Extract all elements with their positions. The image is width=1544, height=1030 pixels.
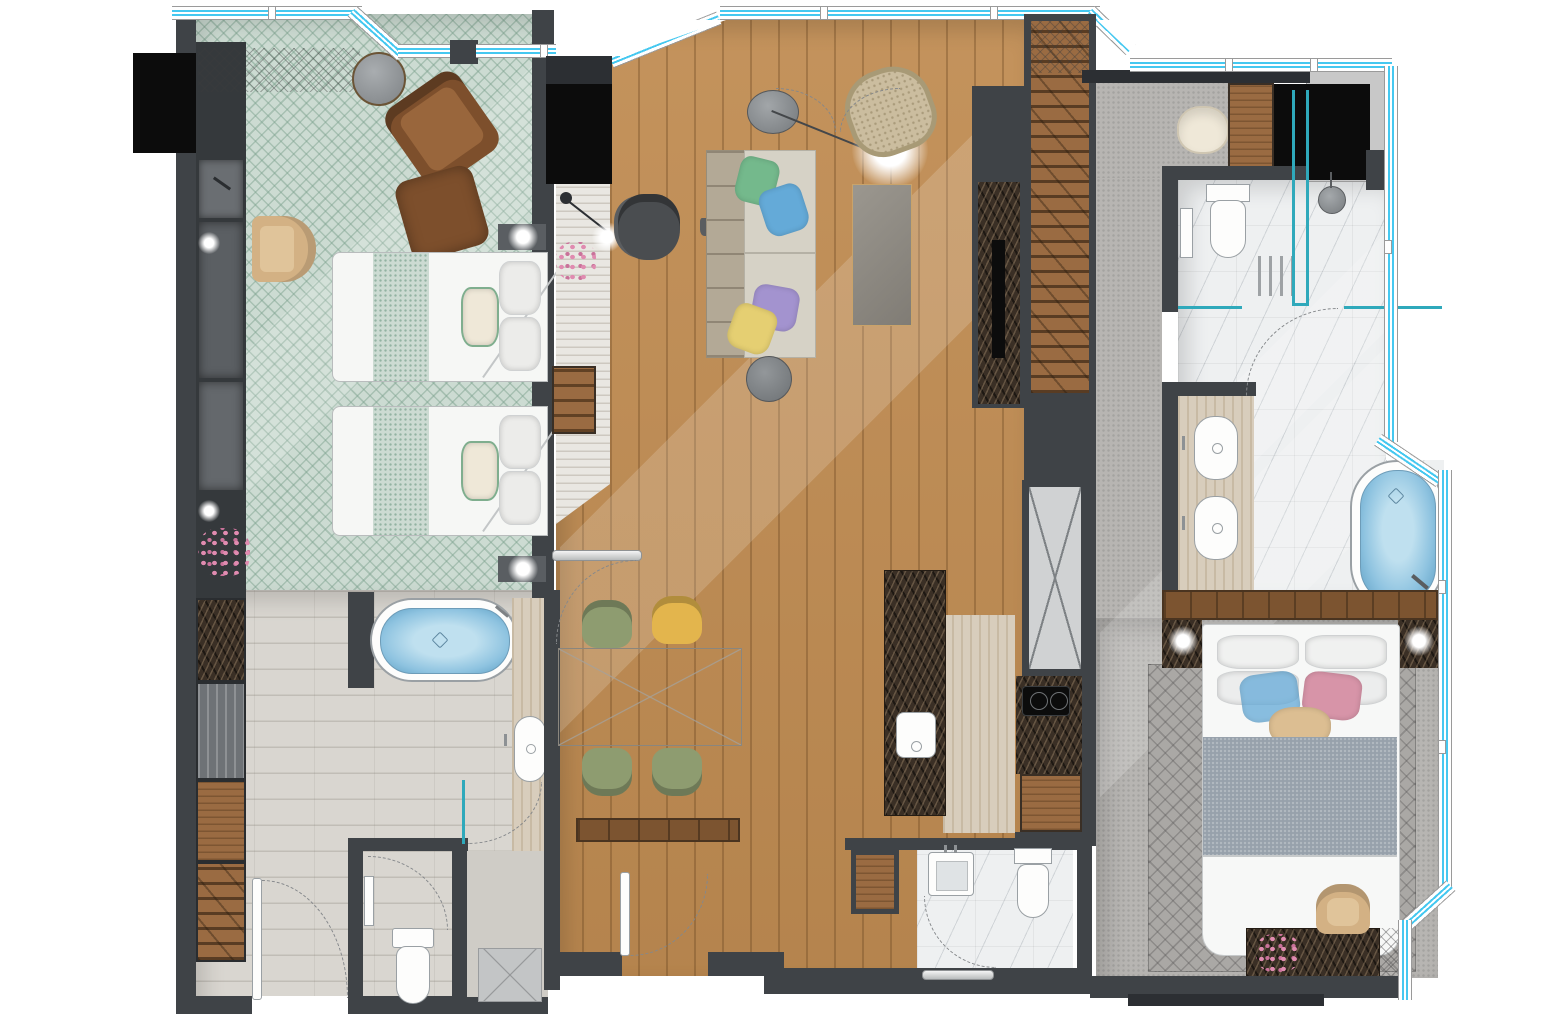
bed-pillow: [1217, 635, 1299, 669]
wall: [544, 952, 622, 976]
closet-panel: [199, 382, 243, 490]
dining-table: [558, 648, 742, 746]
master-toilet-bowl: [1210, 200, 1246, 258]
service-shaft: [1022, 480, 1088, 676]
window: [172, 6, 362, 20]
bed-pillow: [499, 261, 541, 315]
bed-pillow: [499, 317, 541, 371]
powder-sink: [928, 852, 974, 896]
vanity-sink-1: [1194, 416, 1238, 480]
powder-toilet-bowl: [1017, 864, 1049, 918]
shower-glass: [1292, 90, 1295, 306]
console-shelf: [552, 366, 596, 434]
wood-niche: [851, 850, 899, 914]
corridor-floor: [1096, 178, 1162, 620]
shower-tray: [478, 948, 542, 1002]
kitchen-floor: [943, 615, 1015, 833]
headboard-wood-band: [1162, 590, 1438, 620]
towel-niche: [1180, 208, 1193, 258]
vanity-sink: [514, 716, 546, 782]
shower-arm: [1330, 172, 1332, 188]
sink-drain: [911, 741, 922, 752]
toilet-bowl: [396, 946, 430, 1004]
coffee-counter: [1016, 676, 1082, 774]
wall: [450, 40, 478, 64]
bed-pillow: [1305, 635, 1387, 669]
window: [1384, 66, 1398, 442]
bed-runner: [373, 253, 429, 381]
powder-door-track: [922, 970, 994, 980]
sofa-seam: [745, 252, 815, 254]
vanity-faucet: [1182, 436, 1192, 450]
dining-chair-olive: [582, 748, 632, 796]
coffee-table: [852, 184, 912, 326]
desk-chair-tan: [1316, 884, 1370, 934]
bath-wardrobe: [196, 862, 246, 962]
wall: [452, 838, 467, 1008]
kitchen-island: [884, 570, 946, 816]
dining-chair-olive: [582, 600, 632, 648]
tall-cabinet: [1228, 83, 1274, 173]
wardrobe-hatch: [1031, 21, 1089, 73]
wall: [1162, 382, 1256, 396]
wardrobe-run: [1031, 21, 1089, 393]
wall: [1077, 838, 1092, 994]
vanity-faucet: [504, 734, 514, 746]
shower-glass: [462, 780, 465, 844]
bed-blanket: [1203, 737, 1397, 855]
desk-chair: [618, 194, 680, 260]
flower-arrangement: [198, 528, 250, 576]
floor-plan: [0, 0, 1544, 1030]
king-bed: [1202, 624, 1400, 956]
chair-cushion: [1327, 898, 1359, 926]
powder-faucet: [944, 845, 958, 853]
window: [398, 44, 454, 58]
door-threshold: [252, 996, 348, 1014]
bath-cabinet-gray: [196, 682, 246, 780]
dining-chair-yellow: [652, 596, 702, 644]
appliance-knob: [1050, 692, 1068, 710]
closet-panel: [199, 160, 243, 218]
floral-cushion: [461, 287, 499, 347]
chair-cushion: [260, 226, 294, 272]
pouf: [1177, 106, 1229, 154]
television: [992, 240, 1005, 358]
vanity-faucet: [1182, 516, 1192, 530]
wall: [1128, 994, 1324, 1006]
bed-runner: [373, 407, 429, 535]
floral-cushion: [461, 441, 499, 501]
bedside-light: [1404, 626, 1434, 656]
radiator-hatch: [198, 48, 360, 92]
chair-cushion: [397, 84, 487, 175]
bedside-light: [1168, 626, 1198, 656]
sink-drain: [1212, 443, 1223, 454]
wall: [1162, 382, 1178, 594]
window: [1438, 470, 1452, 888]
flower-arrangement: [556, 242, 596, 280]
console-shelf-wood: [576, 818, 740, 842]
sink-drain: [1212, 523, 1223, 534]
bathtub: [370, 598, 518, 682]
twin-bed-1: [332, 252, 548, 382]
bath-cabinet-marble: [196, 598, 246, 682]
bath-cabinet-wood: [196, 780, 246, 862]
flower-arrangement: [1256, 934, 1300, 972]
sink-drain: [526, 744, 536, 754]
wall: [845, 838, 1089, 850]
entry-door-leaf: [252, 878, 262, 1000]
wall: [546, 56, 612, 86]
dining-chair-olive: [652, 748, 702, 796]
armchair-tan: [252, 216, 316, 282]
entry-wall-panel: [546, 84, 612, 184]
closet-light: [198, 232, 220, 254]
side-table: [746, 356, 792, 402]
closet-light: [198, 500, 220, 522]
wall: [1162, 178, 1178, 312]
window: [1398, 920, 1412, 1000]
twin-bed-2: [332, 406, 548, 536]
bed-pillow: [499, 415, 541, 469]
toilet: [392, 928, 434, 948]
wall: [348, 838, 468, 851]
island-sink: [896, 712, 936, 758]
appliance-knob: [1030, 692, 1048, 710]
glass-partition: [1178, 306, 1242, 309]
wall: [1082, 396, 1096, 846]
sink-basin: [936, 861, 968, 891]
round-table: [352, 52, 406, 106]
wall-light: [508, 554, 538, 584]
shower-head: [1318, 186, 1346, 214]
window: [1130, 58, 1392, 72]
base-cabinet: [1020, 774, 1082, 832]
bed-pillow: [499, 471, 541, 525]
shower-glass: [1306, 90, 1309, 306]
wall: [1162, 166, 1308, 180]
wall: [176, 10, 196, 1008]
floor-rack: [1258, 256, 1292, 296]
wall: [348, 838, 363, 1008]
desk-lamp: [560, 192, 572, 204]
entry-door-leaf: [620, 872, 630, 956]
wall-light: [508, 222, 538, 252]
vanity-sink-2: [1194, 496, 1238, 560]
bed-footfold: [1203, 855, 1397, 857]
powder-toilet-tank: [1014, 848, 1052, 864]
shower-glass: [1292, 303, 1309, 306]
